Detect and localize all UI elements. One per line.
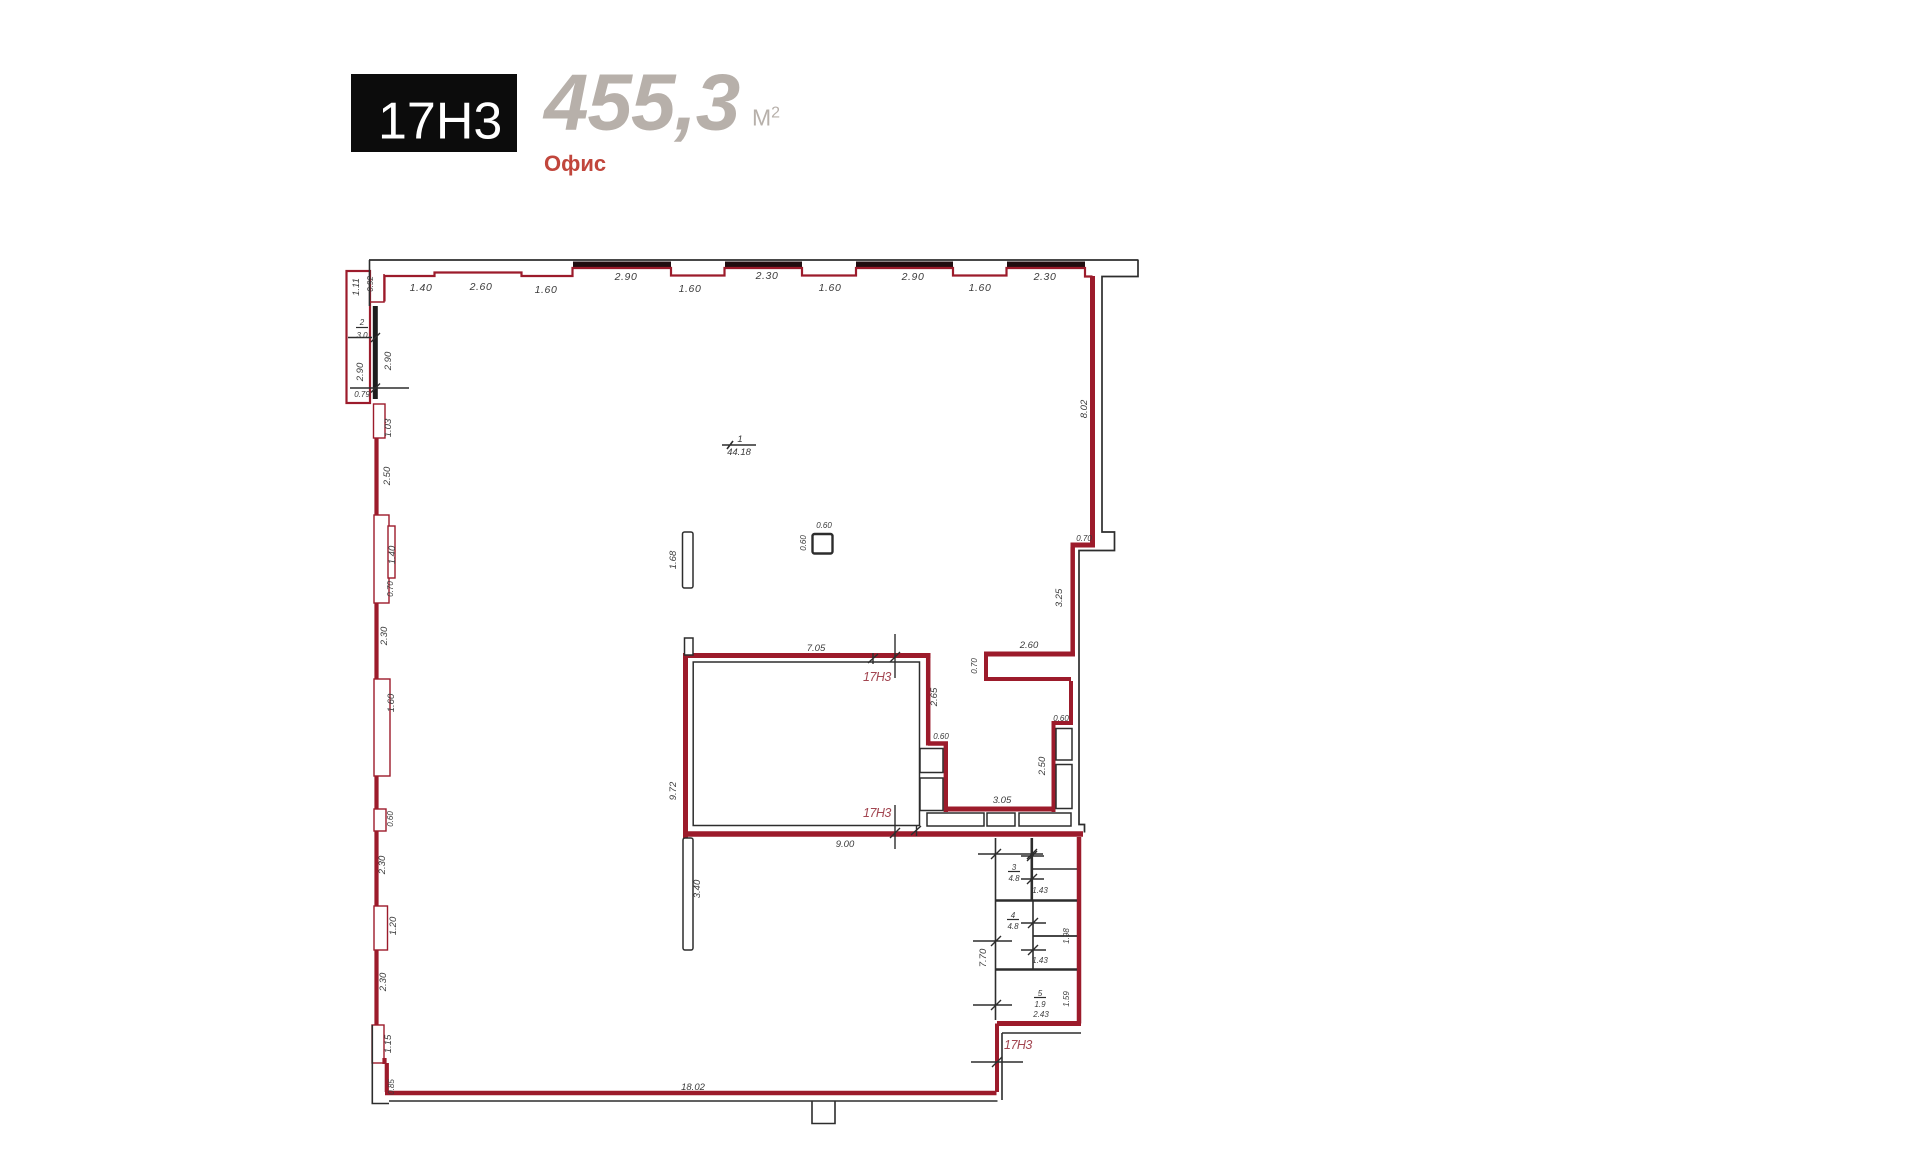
svg-text:0.70: 0.70	[386, 581, 395, 597]
svg-text:3.40: 3.40	[692, 879, 703, 898]
svg-text:18.02: 18.02	[681, 1082, 705, 1093]
svg-text:1.43: 1.43	[1032, 956, 1048, 965]
svg-text:1.60: 1.60	[535, 284, 558, 296]
svg-text:0.60: 0.60	[799, 535, 808, 551]
svg-text:4: 4	[1011, 911, 1016, 920]
svg-text:2.90: 2.90	[901, 271, 925, 283]
svg-text:1.98: 1.98	[1062, 928, 1071, 944]
svg-text:2.30: 2.30	[379, 626, 390, 646]
svg-text:2.43: 2.43	[1032, 1010, 1049, 1019]
svg-text:2.30: 2.30	[1033, 271, 1057, 283]
svg-text:9.72: 9.72	[668, 781, 679, 800]
svg-text:17Н3: 17Н3	[863, 670, 891, 684]
svg-text:1.60: 1.60	[679, 283, 702, 295]
svg-text:2.30: 2.30	[755, 270, 779, 282]
svg-text:1.03: 1.03	[383, 418, 394, 437]
svg-text:8.02: 8.02	[1079, 399, 1090, 418]
svg-text:3.0: 3.0	[356, 331, 368, 340]
svg-text:17Н3: 17Н3	[378, 93, 502, 151]
svg-text:0.60: 0.60	[816, 521, 832, 530]
svg-text:7.70: 7.70	[978, 948, 989, 967]
svg-text:1.40: 1.40	[387, 545, 398, 564]
svg-text:1.43: 1.43	[1032, 886, 1048, 895]
svg-text:7.05: 7.05	[807, 643, 826, 654]
svg-text:2.60: 2.60	[1019, 640, 1039, 651]
svg-text:0.70: 0.70	[1076, 534, 1092, 543]
svg-text:0.60: 0.60	[386, 811, 395, 827]
svg-text:1.20: 1.20	[388, 916, 399, 935]
svg-text:5: 5	[1038, 989, 1043, 998]
svg-text:3: 3	[1012, 863, 1017, 872]
svg-text:0.60: 0.60	[933, 732, 949, 741]
svg-text:17Н3: 17Н3	[1004, 1038, 1032, 1052]
svg-text:4.8: 4.8	[1007, 922, 1019, 931]
svg-text:0.79: 0.79	[354, 390, 370, 399]
svg-text:1.40: 1.40	[410, 282, 433, 294]
svg-text:0.70: 0.70	[970, 658, 979, 674]
svg-text:4.8: 4.8	[1008, 874, 1020, 883]
svg-text:9.00: 9.00	[836, 839, 855, 850]
svg-text:2: 2	[359, 318, 365, 327]
svg-text:1.15: 1.15	[383, 1034, 394, 1053]
svg-text:1.60: 1.60	[386, 693, 397, 712]
svg-text:Офис: Офис	[544, 151, 606, 176]
svg-text:2.90: 2.90	[614, 271, 638, 283]
svg-text:0.85: 0.85	[387, 1079, 396, 1095]
svg-text:44.18: 44.18	[727, 447, 751, 458]
svg-text:3.05: 3.05	[993, 795, 1012, 806]
svg-text:1.60: 1.60	[969, 282, 992, 294]
svg-text:2.60: 2.60	[469, 281, 493, 293]
svg-text:1.9: 1.9	[1034, 1000, 1046, 1009]
svg-text:2.50: 2.50	[382, 466, 393, 486]
svg-text:2.30: 2.30	[378, 972, 389, 992]
svg-text:0.92: 0.92	[366, 276, 375, 292]
svg-text:2.90: 2.90	[355, 362, 366, 382]
svg-text:3.25: 3.25	[1054, 588, 1065, 607]
svg-text:2.30: 2.30	[377, 855, 388, 875]
svg-text:1.11: 1.11	[351, 278, 362, 296]
svg-text:2.90: 2.90	[383, 351, 394, 371]
svg-text:17Н3: 17Н3	[863, 806, 891, 820]
svg-text:1.59: 1.59	[1062, 991, 1071, 1007]
svg-text:1.60: 1.60	[819, 282, 842, 294]
svg-text:0.60: 0.60	[1053, 714, 1069, 723]
svg-text:1: 1	[737, 434, 742, 445]
svg-text:1.68: 1.68	[668, 550, 679, 569]
svg-text:455,3: 455,3	[542, 58, 740, 147]
svg-text:2.50: 2.50	[1037, 756, 1048, 776]
svg-text:2.65: 2.65	[929, 687, 940, 707]
